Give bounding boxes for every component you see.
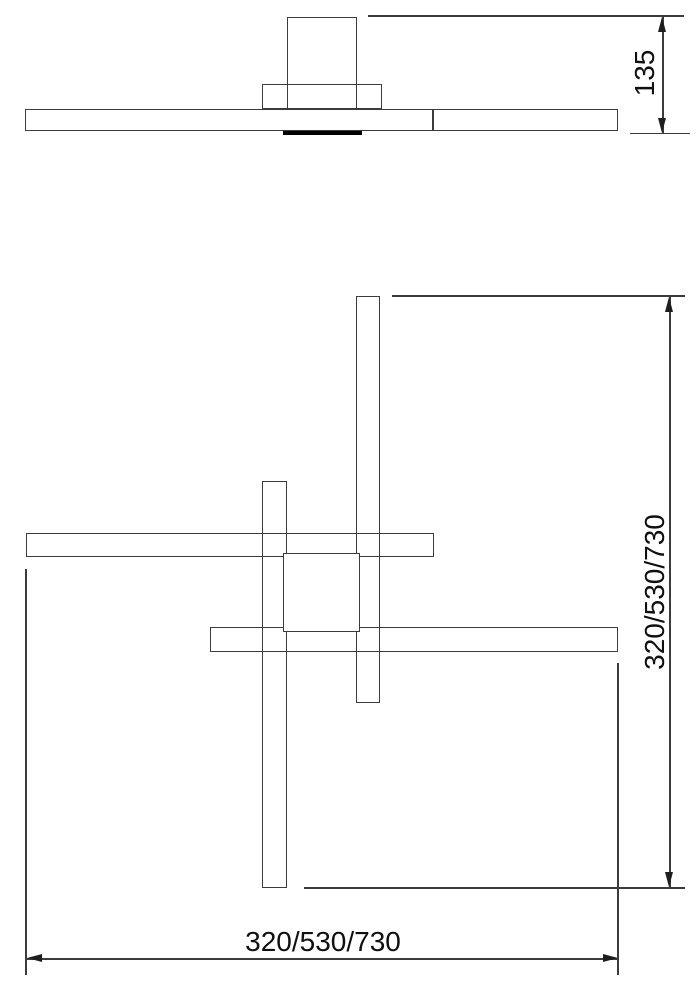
dim-135-arrowhead-up-icon: [658, 17, 666, 32]
dim-width-extension-line-left: [25, 569, 27, 975]
dim-height-arrowhead-down-icon: [665, 872, 673, 887]
dim-width-label: 320/530/730: [245, 928, 401, 956]
dim-width-extension-line-right: [617, 663, 619, 975]
dim-width-arrowhead-left-icon: [27, 954, 42, 962]
canopy-square-outline: [283, 553, 360, 632]
horizontal-bar-lower-outline: [210, 627, 618, 652]
dim-width-dimension-line: [27, 958, 618, 960]
led-diffuser-strip: [283, 131, 362, 135]
dim-135-arrowhead-down-icon: [658, 118, 666, 133]
dim-height-label: 320/530/730: [641, 514, 669, 670]
dim-height-arrowhead-up-icon: [665, 297, 673, 312]
dim-height-extension-line-bottom: [304, 887, 685, 889]
technical-drawing-canvas: 135 320/530/730 320/530/730: [0, 0, 696, 983]
dim-width-arrowhead-right-icon: [603, 954, 618, 962]
dim-135-label: 135: [631, 50, 659, 97]
fixture-bar-outline: [25, 109, 618, 131]
fixture-bar-divider-line: [432, 109, 434, 131]
dim-135-dimension-line: [662, 17, 664, 133]
dim-height-extension-line-top: [392, 295, 685, 297]
mounting-bracket-outline: [262, 84, 382, 109]
horizontal-bar-upper-outline: [26, 533, 434, 557]
dim-135-extension-line-top: [368, 15, 684, 17]
